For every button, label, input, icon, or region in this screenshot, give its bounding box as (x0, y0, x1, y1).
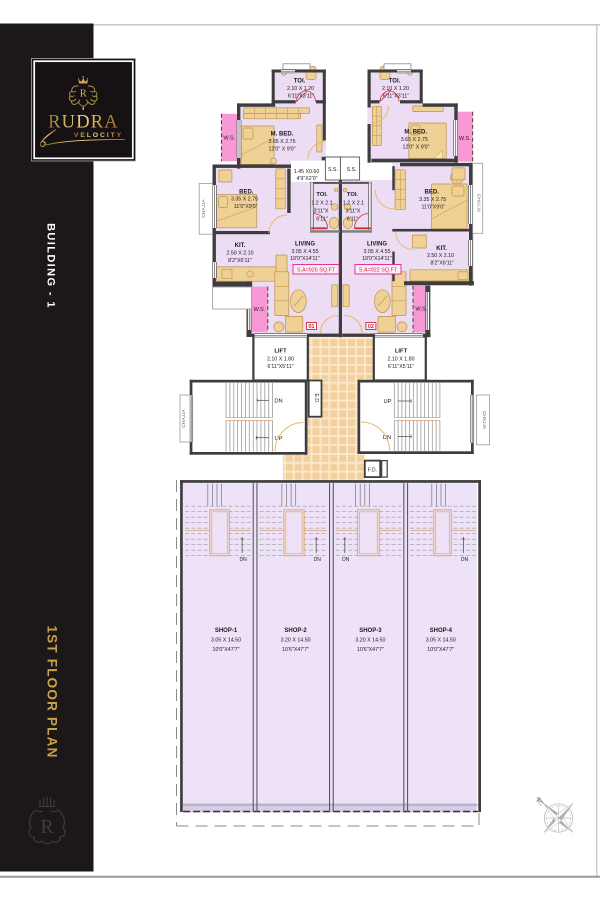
svg-text:8'2"X6'11": 8'2"X6'11" (430, 260, 454, 266)
svg-text:12'0" X 9'0": 12'0" X 9'0" (269, 146, 296, 152)
svg-text:3.05 X 4.55: 3.05 X 4.55 (363, 249, 390, 255)
svg-text:2.50 X 2.10: 2.50 X 2.10 (226, 251, 253, 257)
svg-text:1.2 X 2.1: 1.2 X 2.1 (343, 200, 364, 206)
svg-text:TOI.: TOI. (347, 192, 359, 198)
svg-text:S.S.: S.S. (347, 167, 357, 173)
svg-text:DN: DN (461, 557, 469, 563)
svg-text:11'0"X9'0": 11'0"X9'0" (234, 204, 258, 210)
svg-text:W.S.: W.S. (415, 306, 427, 312)
svg-text:02: 02 (368, 324, 374, 330)
svg-text:KIT.: KIT. (436, 246, 447, 252)
svg-text:11'0"X9'0": 11'0"X9'0" (421, 204, 445, 210)
svg-text:DN: DN (342, 557, 350, 563)
svg-text:CHAJJA: CHAJJA (181, 409, 187, 428)
svg-text:2.10 X 1.80: 2.10 X 1.80 (387, 356, 414, 362)
svg-text:TOI.: TOI. (389, 79, 401, 85)
svg-text:W.S.: W.S. (459, 136, 471, 142)
svg-text:BED.: BED. (425, 190, 440, 196)
svg-text:4'9"X2'0": 4'9"X2'0" (296, 176, 317, 182)
svg-text:TOI.: TOI. (294, 79, 306, 85)
svg-text:M. BED.: M. BED. (404, 130, 427, 136)
svg-text:3.65 X 2.75: 3.65 X 2.75 (268, 139, 295, 145)
svg-text:6'11"X3'11": 6'11"X3'11" (383, 93, 409, 99)
svg-text:CHAJJA: CHAJJA (476, 194, 482, 213)
svg-text:R: R (40, 816, 54, 838)
svg-text:LIVING: LIVING (295, 242, 315, 248)
svg-text:2.10 X 1.80: 2.10 X 1.80 (267, 356, 294, 362)
svg-text:BED.: BED. (239, 189, 254, 195)
svg-text:3.65 X 2.75: 3.65 X 2.75 (401, 137, 428, 143)
svg-text:LIFT: LIFT (274, 349, 287, 355)
svg-text:3.05 X 14.50: 3.05 X 14.50 (211, 638, 241, 644)
svg-text:W.S.: W.S. (223, 136, 235, 142)
svg-text:10'0"X47'7": 10'0"X47'7" (213, 647, 240, 653)
svg-text:CHAJJA: CHAJJA (201, 199, 207, 218)
svg-text:6'11"X5'11": 6'11"X5'11" (388, 364, 414, 370)
svg-text:10'0"X47'7": 10'0"X47'7" (427, 647, 454, 653)
svg-text:6'11"X5'11": 6'11"X5'11" (267, 364, 293, 370)
svg-text:S.A=922 SQ.FT: S.A=922 SQ.FT (359, 268, 398, 274)
svg-text:SHOP-1: SHOP-1 (215, 628, 238, 634)
svg-text:VELOCITY: VELOCITY (74, 132, 123, 139)
svg-text:LIVING: LIVING (367, 242, 387, 248)
svg-text:3'11"X: 3'11"X (346, 208, 361, 214)
svg-text:01: 01 (309, 324, 315, 330)
svg-text:F.D.: F.D. (368, 467, 377, 473)
svg-text:3.05 X 4.55: 3.05 X 4.55 (291, 249, 318, 255)
svg-text:S.S.: S.S. (328, 167, 338, 173)
svg-text:UP: UP (383, 399, 391, 405)
svg-text:DN: DN (239, 557, 247, 563)
svg-text:2.50 X 2.10: 2.50 X 2.10 (427, 253, 454, 259)
svg-text:3'11"X: 3'11"X (314, 208, 329, 214)
svg-text:1.2 X 2.1: 1.2 X 2.1 (311, 200, 332, 206)
svg-text:1ST FLOOR PLAN: 1ST FLOOR PLAN (45, 625, 60, 758)
svg-text:BUILDING - 1: BUILDING - 1 (45, 223, 57, 309)
svg-text:E.D.: E.D. (313, 393, 319, 403)
svg-text:SHOP-4: SHOP-4 (430, 628, 453, 634)
svg-text:KIT.: KIT. (235, 243, 246, 249)
svg-text:SHOP-3: SHOP-3 (359, 628, 382, 634)
svg-text:10'0"X14'11": 10'0"X14'11" (362, 256, 392, 262)
svg-text:W.S.: W.S. (253, 307, 265, 313)
svg-text:3.35 X 2.75: 3.35 X 2.75 (231, 197, 258, 203)
svg-text:10'6"X47'7": 10'6"X47'7" (282, 647, 309, 653)
svg-text:RUDRA: RUDRA (48, 113, 119, 133)
svg-text:LIFT: LIFT (395, 349, 408, 355)
svg-text:6'11'': 6'11'' (316, 217, 327, 223)
svg-text:10'0"X14'11": 10'0"X14'11" (290, 256, 320, 262)
svg-text:1.45 X0.60: 1.45 X0.60 (294, 169, 320, 175)
svg-text:DN: DN (274, 399, 282, 405)
svg-text:2.10 X 1.20: 2.10 X 1.20 (382, 86, 409, 92)
svg-text:R: R (80, 89, 87, 100)
svg-text:3.20 X 14.50: 3.20 X 14.50 (355, 638, 385, 644)
svg-text:M. BED.: M. BED. (271, 132, 294, 138)
svg-text:10'6"X47'7": 10'6"X47'7" (357, 647, 384, 653)
svg-text:6'11"X3'11": 6'11"X3'11" (288, 93, 314, 99)
svg-text:S.A=926 SQ.FT: S.A=926 SQ.FT (297, 268, 336, 274)
svg-text:8'2"X6'11": 8'2"X6'11" (228, 258, 252, 264)
svg-text:2.10 X 1.20: 2.10 X 1.20 (287, 86, 314, 92)
svg-text:3.05 X 14.50: 3.05 X 14.50 (426, 638, 456, 644)
svg-text:SHOP-2: SHOP-2 (284, 628, 307, 634)
svg-text:CHAJJA: CHAJJA (481, 411, 487, 430)
svg-text:3.20 X 14.50: 3.20 X 14.50 (281, 638, 311, 644)
svg-text:3.35 X 2.75: 3.35 X 2.75 (419, 197, 446, 203)
svg-text:DN: DN (314, 557, 322, 563)
svg-text:12'0" X 9'0": 12'0" X 9'0" (403, 145, 430, 151)
svg-text:6'11'': 6'11'' (347, 217, 358, 223)
svg-text:TOI.: TOI. (316, 192, 328, 198)
